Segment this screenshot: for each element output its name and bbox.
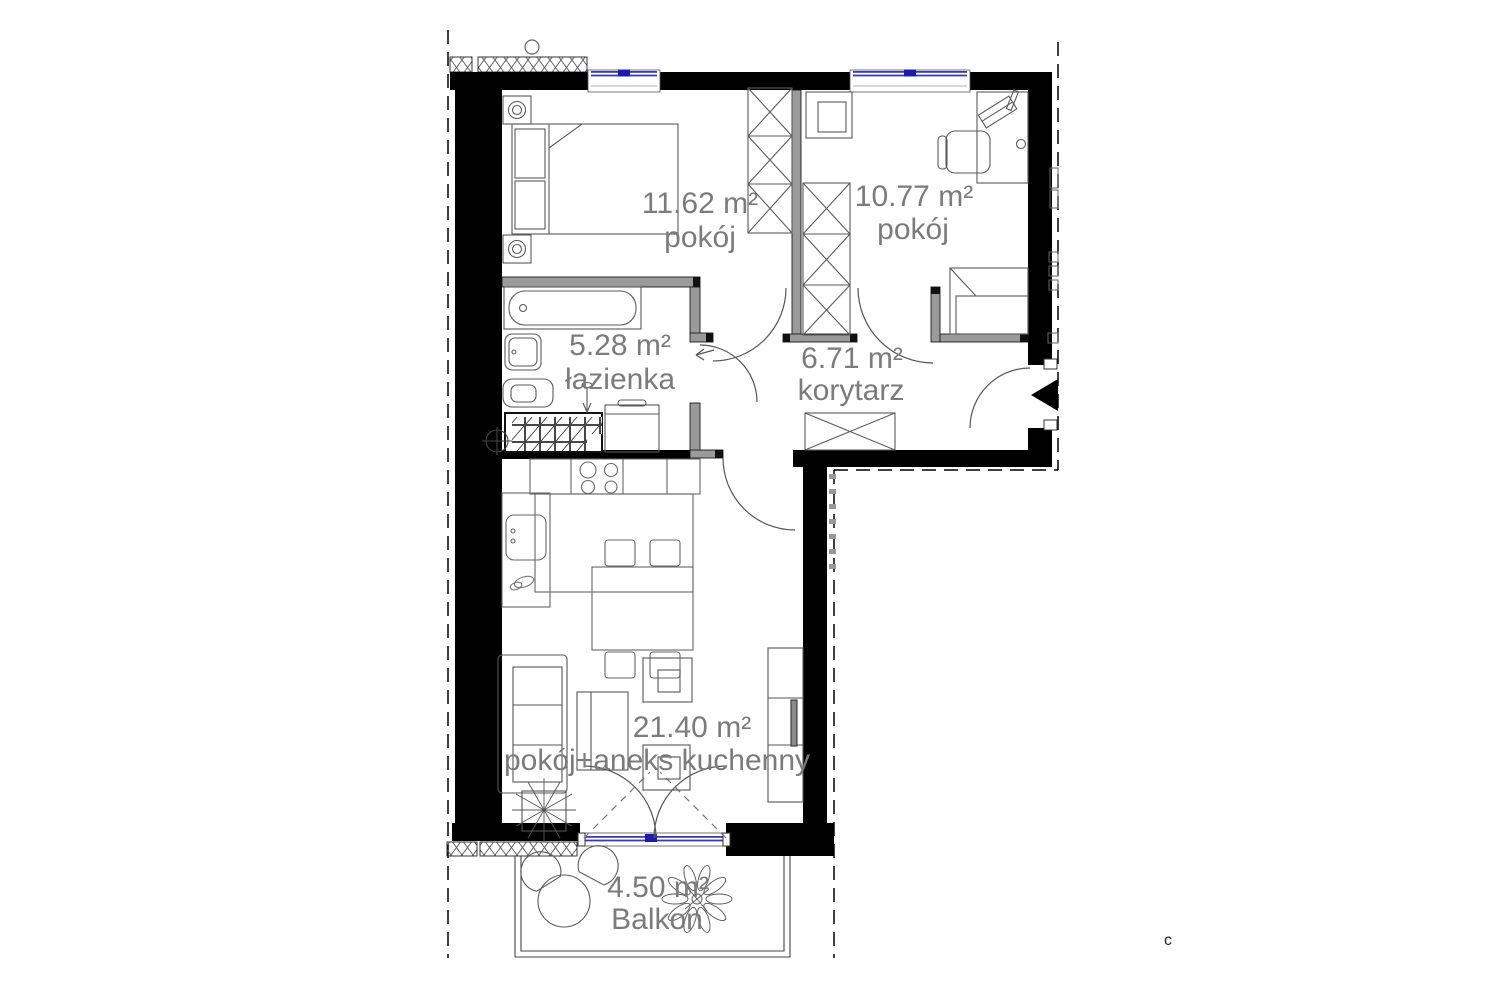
window-marker (904, 70, 916, 77)
floor-plan-page: 11.62 m² pokój 10.77 m² pokój 5.28 m² ła… (0, 0, 1500, 1000)
wall-right-upper (1028, 90, 1052, 365)
chair (650, 540, 680, 566)
wardrobe-office (803, 183, 850, 335)
wall-top-left (450, 72, 592, 90)
entrance-door (1031, 359, 1058, 430)
chair (605, 540, 635, 566)
label-bedroom-name: pokój (664, 221, 736, 254)
installation-shaft (505, 413, 602, 452)
window-office (850, 70, 970, 93)
door-living (723, 458, 795, 530)
entrance-arrow-icon (1031, 379, 1058, 411)
room-corridor (805, 413, 895, 450)
wall-bottom-right-corner (726, 823, 834, 856)
kitchen-counter (502, 459, 700, 607)
door-entrance-arc (970, 368, 1030, 428)
label-bedroom-area: 11.62 m² (642, 187, 758, 220)
wall-office-jog (931, 287, 940, 342)
chair (605, 652, 635, 678)
room-bedroom (503, 88, 792, 263)
desk (977, 90, 1028, 183)
wall-tick-marks (829, 474, 836, 569)
kitchen-sink (506, 515, 546, 560)
balcony-table (538, 875, 590, 927)
dining-table (592, 540, 693, 678)
wall-left (455, 90, 502, 823)
label-bathroom-area: 5.28 m² (569, 329, 671, 362)
label-living-name: pokój+aneks kuchenny (504, 744, 810, 777)
wardrobe-corridor (805, 413, 895, 450)
window-marker (618, 70, 630, 77)
room-labels: 11.62 m² pokój 10.77 m² pokój 5.28 m² ła… (504, 180, 973, 936)
label-office-area: 10.77 m² (855, 180, 973, 213)
washing-machine (605, 400, 659, 452)
toilet (503, 379, 553, 407)
stove-burners (580, 462, 618, 494)
label-corridor-area: 6.71 m² (801, 342, 903, 375)
cabinet (806, 92, 852, 138)
interior-walls (502, 90, 1028, 458)
bed-office (950, 268, 1028, 334)
nightstand-top (503, 96, 531, 124)
tv-cabinet (768, 648, 803, 802)
vent-pipe-icon (525, 40, 539, 54)
window-bedroom (588, 70, 660, 93)
door-bathroom (700, 345, 757, 402)
room-living (498, 459, 803, 842)
page-annotation: c (1164, 932, 1172, 949)
tv-icon (791, 700, 797, 746)
wall-bathroom-right-lower (690, 403, 700, 451)
bathtub (504, 287, 641, 329)
nightstand-bottom (503, 235, 531, 263)
label-balcony-name: Balkon (611, 903, 703, 936)
label-corridor-name: korytarz (798, 374, 905, 407)
wall-office-bottom (940, 334, 1028, 342)
bathroom-door-arrow-icon (696, 349, 714, 360)
bathroom-sink (505, 334, 541, 370)
wall-partition-rooms (792, 90, 801, 342)
kitchen-island (535, 494, 693, 592)
wall-top-middle (658, 72, 852, 90)
label-office-name: pokój (877, 213, 949, 246)
wall-corridor-bottom (793, 450, 1052, 467)
wall-top-right (968, 72, 1052, 90)
wall-bathroom-top (502, 277, 700, 287)
office-chair (938, 131, 990, 173)
floor-plan: 11.62 m² pokój 10.77 m² pokój 5.28 m² ła… (0, 0, 1500, 1000)
label-living-area: 21.40 m² (633, 711, 751, 744)
window-marker (645, 834, 657, 842)
label-bathroom-name: łazienka (565, 363, 675, 396)
chair (650, 652, 680, 678)
faucet-icon (509, 574, 535, 591)
wall-bathroom-right-upper (690, 287, 700, 335)
label-balcony-area: 4.50 m² (607, 871, 709, 904)
